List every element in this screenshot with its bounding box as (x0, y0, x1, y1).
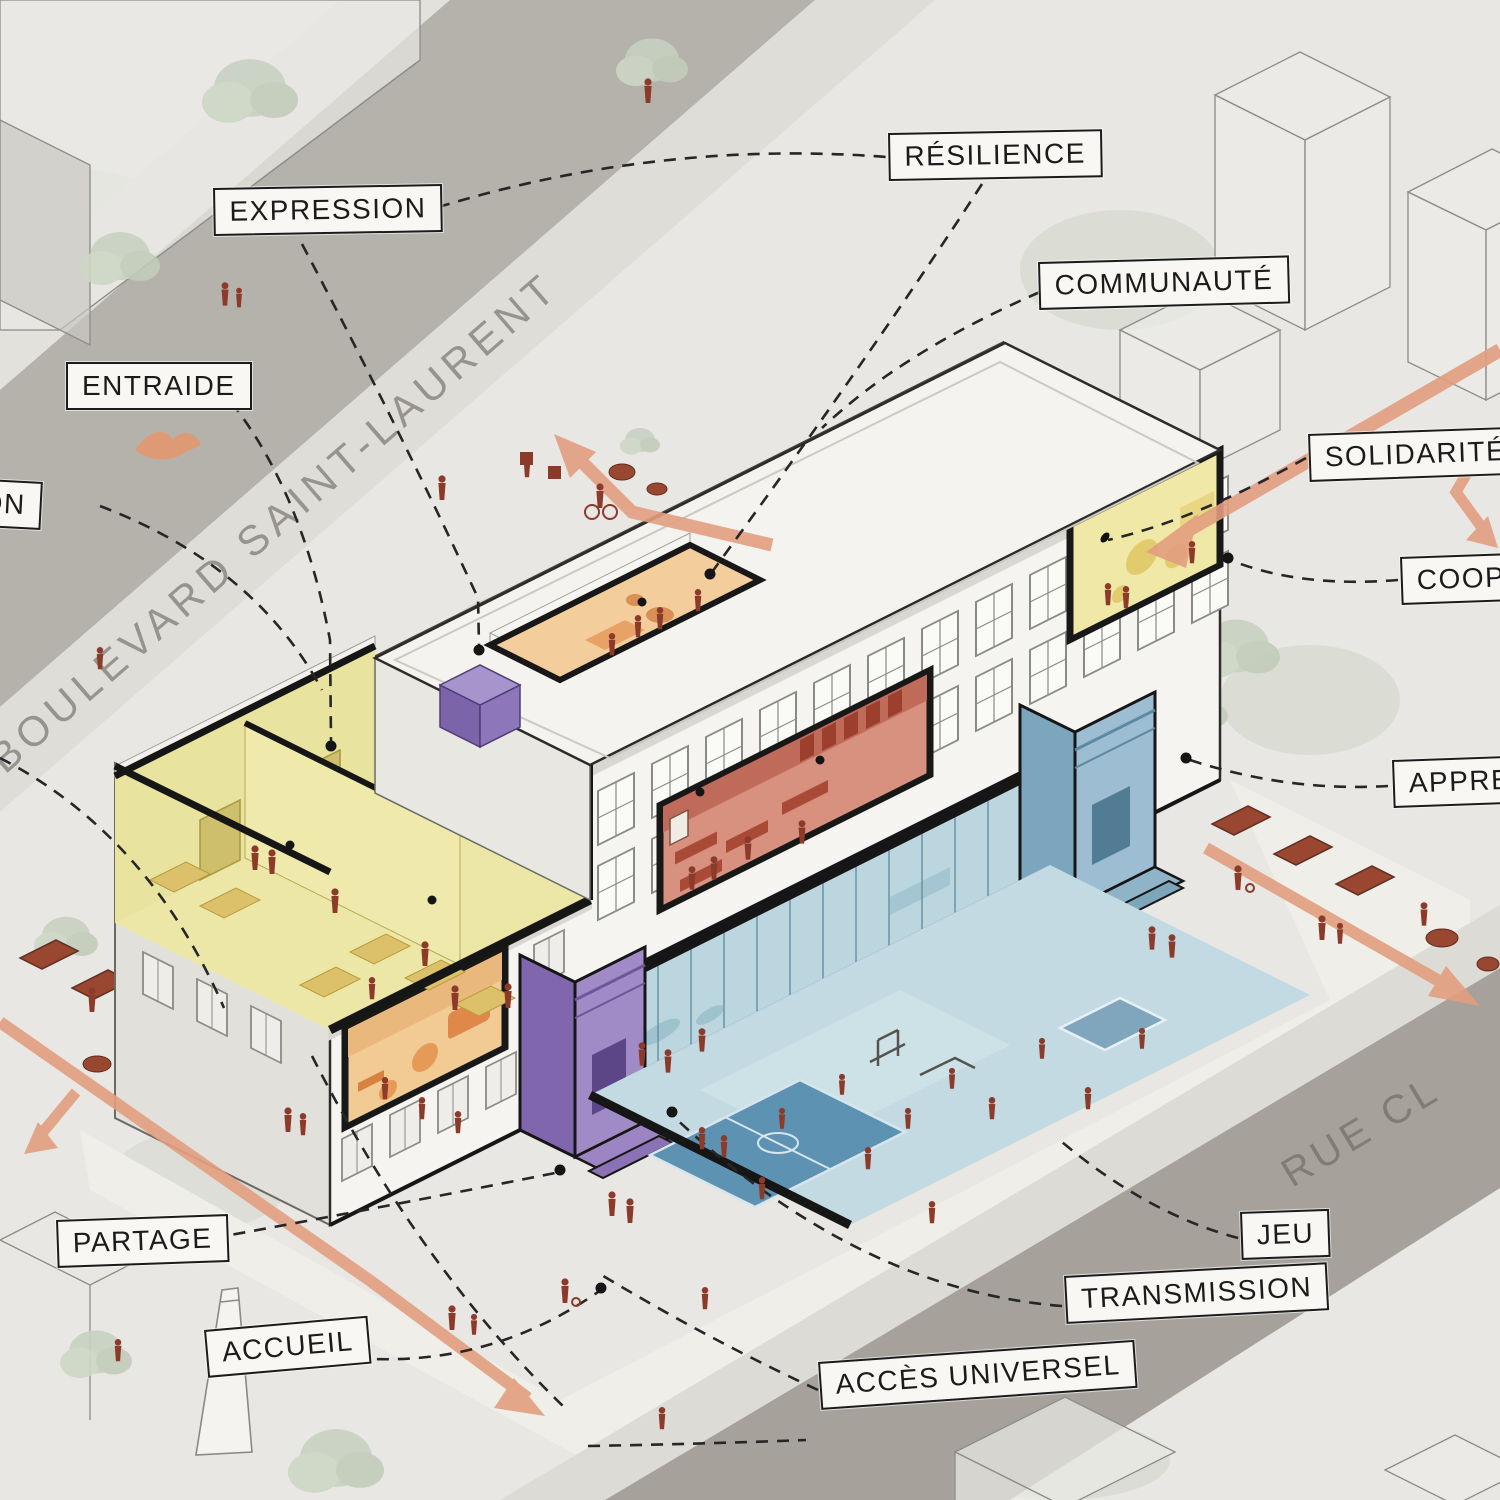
label-entraide: ENTRAIDE (66, 362, 252, 410)
label-communaute: COMMUNAUTÉ (1038, 255, 1290, 310)
label-partage: PARTAGE (56, 1214, 229, 1268)
label-expression: EXPRESSION (213, 184, 443, 236)
axonometric-diagram-poster: BOULEVARD SAINT-LAURENT RUE CL (0, 0, 1500, 1500)
label-appre-partial: APPRE (1392, 755, 1500, 808)
label-on-partial: ON (0, 478, 43, 530)
label-solidarite: SOLIDARITÉ (1308, 427, 1500, 482)
label-coop-partial: COOP (1400, 553, 1500, 605)
label-jeu: JEU (1240, 1209, 1331, 1260)
label-resilience: RÉSILIENCE (888, 129, 1102, 181)
